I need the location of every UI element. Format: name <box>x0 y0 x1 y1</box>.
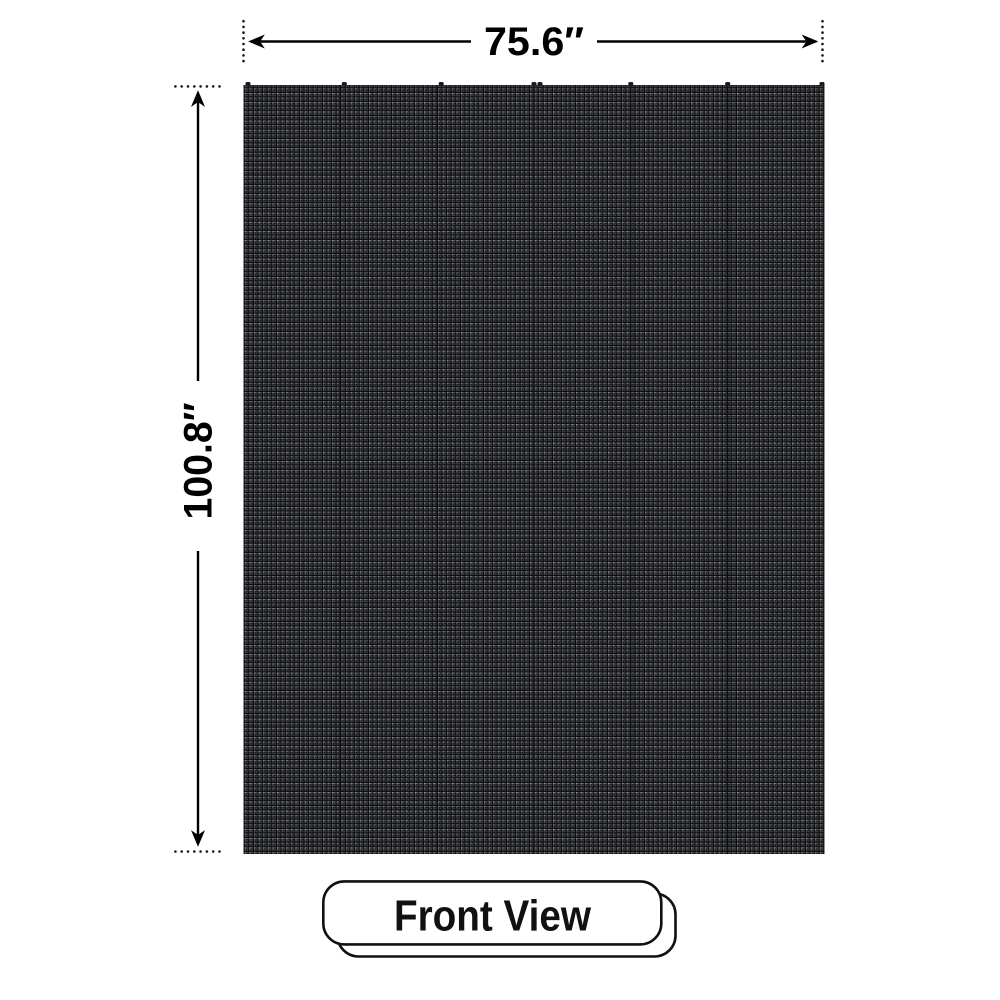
svg-text:100.8″: 100.8″ <box>177 403 221 520</box>
svg-text:Front View: Front View <box>394 892 592 941</box>
svg-text:75.6″: 75.6″ <box>484 20 584 64</box>
